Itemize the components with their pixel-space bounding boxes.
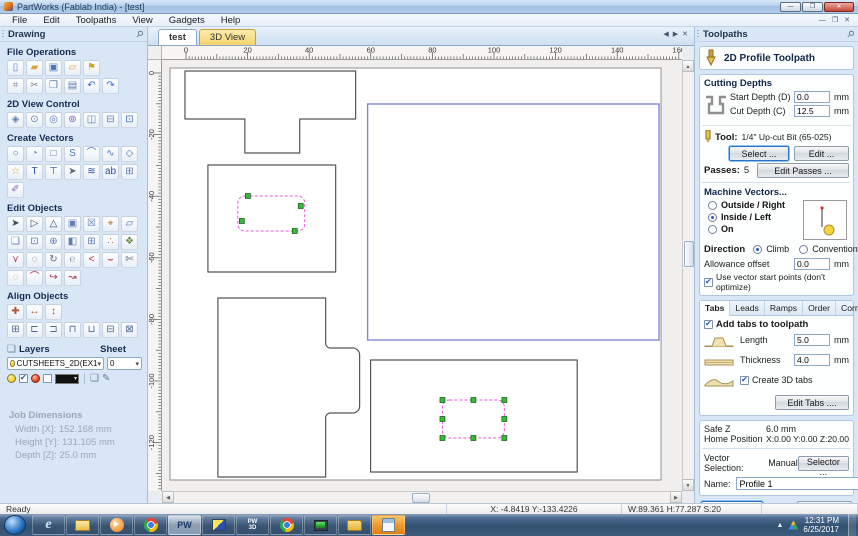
close-vector-icon[interactable]: ◌: [26, 252, 43, 268]
chevron-down-icon: ▾: [97, 360, 101, 368]
tab-thickness-icon: [704, 353, 734, 367]
draw-polyline-icon[interactable]: S: [64, 146, 81, 162]
draw-star-icon[interactable]: ☆: [7, 164, 24, 180]
vertical-scrollbar[interactable]: ▲ ▼: [682, 60, 694, 491]
tab-3d-view[interactable]: 3D View: [199, 29, 256, 45]
taskbar-folder-icon: [347, 520, 362, 531]
layers-label: Layers: [19, 344, 50, 355]
status-ready: Ready: [0, 504, 447, 514]
tab-tabs[interactable]: Tabs: [700, 301, 730, 316]
drive-tray-icon[interactable]: [788, 521, 798, 530]
menu-gadgets[interactable]: Gadgets: [161, 14, 213, 27]
radio-climb[interactable]: Climb: [753, 244, 789, 254]
window-title: PartWorks (Fablab India) - [test]: [17, 2, 144, 12]
job-dimensions-title: Job Dimensions: [9, 410, 147, 421]
new-layer-icon[interactable]: ❏: [90, 373, 99, 384]
nesting-icon[interactable]: ❖: [121, 234, 138, 250]
taskbar-calculator-icon: [382, 518, 395, 532]
mdi-minimize-icon[interactable]: —: [819, 15, 826, 27]
taskbar-partworks-3d-icon: PW3D: [245, 517, 261, 533]
horizontal-ruler: 020406080100120140160: [162, 46, 682, 60]
cutting-depths-group: Cutting Depths Start Depth (D) mm Cut De…: [699, 74, 854, 296]
scroll-left-icon[interactable]: ◀: [162, 491, 174, 503]
selection-handle[interactable]: [245, 194, 250, 199]
sheet-select[interactable]: 0 ▾: [107, 357, 142, 370]
vertical-scroll-thumb[interactable]: [684, 241, 694, 267]
taskbar-partworks-icon: PW: [177, 517, 193, 533]
convert-text-icon[interactable]: ab: [102, 164, 119, 180]
align-left-icon[interactable]: ⊏: [26, 322, 43, 338]
zoom-selected-icon[interactable]: ⊚: [64, 112, 81, 128]
bezier-fit-icon[interactable]: ⌣: [102, 252, 119, 268]
zoom-box-icon[interactable]: ◎: [45, 112, 62, 128]
array-copy-icon[interactable]: ⊞: [83, 234, 100, 250]
section-view-control: 2D View Control: [7, 99, 147, 110]
chevron-down-icon: ▾: [135, 360, 139, 368]
passes-value: 5: [744, 165, 749, 176]
radio-conventional[interactable]: Conventional: [799, 244, 858, 254]
taskbar-calculator[interactable]: [372, 515, 405, 535]
edit-objects-toolbar: ➤▷△▣☒⌖▱: [7, 216, 147, 232]
scroll-up-icon[interactable]: ▲: [682, 60, 694, 72]
selection-size: W:89.361 H:77.287 S:20: [622, 504, 762, 514]
layer-color-select[interactable]: ▾: [55, 374, 79, 384]
draw-arc-icon[interactable]: ⌒: [83, 146, 100, 162]
cursor-position: X: -4.8419 Y:-133.4226: [447, 504, 622, 514]
cutting-depths-icon: [704, 91, 728, 121]
copy-along-vector-icon[interactable]: ∴: [102, 234, 119, 250]
tool-icon: [704, 130, 712, 144]
layer-highlight-bulb-icon[interactable]: [31, 374, 40, 383]
vector-drawing[interactable]: [162, 60, 682, 491]
mdi-restore-icon[interactable]: ❐: [832, 15, 838, 27]
minimize-window-icon[interactable]: —: [780, 2, 801, 12]
vector-selection-value: Manual: [768, 458, 798, 468]
taskbar-media-player-icon: ▶: [110, 518, 124, 532]
tab-ramps[interactable]: Ramps: [765, 301, 803, 315]
horizontal-scroll-thumb[interactable]: [412, 493, 430, 503]
taskbar-ie[interactable]: e: [32, 515, 65, 535]
taskbar-folder[interactable]: [338, 515, 371, 535]
app-icon: [4, 2, 13, 11]
selection-handle[interactable]: [502, 398, 507, 403]
job-height-value: 131.105 mm: [62, 437, 115, 448]
draw-ellipse-icon[interactable]: ◔: [26, 146, 43, 162]
group-objects-icon[interactable]: ▣: [64, 216, 81, 232]
distort-object-icon[interactable]: ▱: [121, 216, 138, 232]
toolpaths-panel: Toolpaths ⚲ 2D Profile Toolpath Cutting …: [695, 27, 858, 503]
layer-visibility-checkbox[interactable]: [19, 374, 28, 383]
horizontal-scrollbar[interactable]: ◀ ▶: [162, 491, 682, 503]
taskbar-system-monitor[interactable]: [304, 515, 337, 535]
arc-fit-icon[interactable]: <: [83, 252, 100, 268]
toolpath-title: 2D Profile Toolpath: [724, 53, 815, 64]
svg-text:120: 120: [549, 46, 562, 55]
file-operations-toolbar: ▯▰▣▱⚑: [7, 60, 147, 76]
select-tool-button[interactable]: Select ...: [729, 146, 789, 161]
toolpaths-panel-title: Toolpaths: [703, 29, 748, 40]
draw-polygon-icon[interactable]: ◇: [121, 146, 138, 162]
svg-text:60: 60: [367, 46, 375, 55]
selection-handle[interactable]: [440, 398, 445, 403]
switch-3d-view-icon[interactable]: ⊡: [121, 112, 138, 128]
vector-shape[interactable]: [170, 68, 661, 480]
edit-tabs-button[interactable]: Edit Tabs ....: [775, 395, 849, 410]
zoom-interactive-icon[interactable]: ⊙: [26, 112, 43, 128]
taskbar-explorer-icon: [75, 520, 90, 531]
job-depth-value: 25.0 mm: [59, 450, 96, 461]
svg-text:40: 40: [305, 46, 313, 55]
view-control-toolbar: ◈⊙◎⊚◫⊟⊡: [7, 112, 147, 128]
ungroup-objects-icon[interactable]: ☒: [83, 216, 100, 232]
add-tabs-checkbox[interactable]: Add tabs to toolpath: [704, 319, 849, 330]
select-tool-icon[interactable]: ➤: [7, 216, 24, 232]
restore-window-icon[interactable]: ❐: [802, 2, 823, 12]
undo-icon[interactable]: ↶: [83, 78, 100, 94]
taskbar-media-player[interactable]: ▶: [100, 515, 133, 535]
svg-text:-20: -20: [148, 129, 156, 140]
align-bottom-icon[interactable]: ⊔: [83, 322, 100, 338]
tab-test[interactable]: test: [158, 29, 197, 45]
svg-text:100: 100: [488, 46, 501, 55]
selection-handle[interactable]: [440, 436, 445, 441]
pin-icon[interactable]: ⚲: [845, 28, 856, 39]
cut-vector-icon[interactable]: ✄: [121, 252, 138, 268]
vertical-ruler: 0-20-40-60-80-100-120: [148, 60, 162, 491]
redo-icon[interactable]: ↷: [102, 78, 119, 94]
edit-tool-button[interactable]: Edit ...: [794, 146, 849, 161]
selection-handle[interactable]: [440, 417, 445, 422]
taskbar-partworks[interactable]: PW: [168, 515, 201, 535]
draw-freehand-icon[interactable]: ✐: [7, 182, 24, 198]
zoom-extents-icon[interactable]: ◫: [83, 112, 100, 128]
taskbar: e▶PWPW3D ▲ 12:31 PM 6/25/2017: [0, 514, 858, 536]
vector-texture-icon[interactable]: ⊞: [121, 164, 138, 180]
menu-edit[interactable]: Edit: [35, 14, 67, 27]
text-box-icon[interactable]: ⊤: [45, 164, 62, 180]
tab-corners[interactable]: Corners: [836, 301, 858, 315]
arc-segment-icon[interactable]: ⌒: [26, 270, 43, 286]
export-vectors-icon[interactable]: ⚑: [83, 60, 100, 76]
move-object-icon[interactable]: ⊕: [45, 234, 62, 250]
start-button[interactable]: [4, 515, 26, 535]
paste-icon[interactable]: ▤: [64, 78, 81, 94]
cut-depth-input[interactable]: [794, 105, 830, 117]
drawing-panel: Drawing ⚲ File Operations ▯▰▣▱⚑ ⌗✂❐▤↶↷ 2…: [0, 27, 148, 503]
job-dimensions: Job Dimensions Width [X]: 152.168 mm Hei…: [0, 410, 147, 461]
title-bar: PartWorks (Fablab India) - [test] — ❐ ✕: [0, 0, 858, 14]
menu-bar: FileEditToolpathsViewGadgetsHelp: [0, 14, 858, 27]
radio-inside-left[interactable]: Inside / Left: [708, 212, 803, 222]
taskbar-items: e▶PWPW3D: [32, 515, 406, 535]
scale-object-icon[interactable]: ⊡: [26, 234, 43, 250]
home-position-value: X:0.00 Y:0.00 Z:20.00: [766, 434, 849, 444]
toolpath-name-input[interactable]: [736, 477, 858, 490]
selection-handle[interactable]: [298, 204, 303, 209]
svg-text:-100: -100: [148, 373, 156, 388]
machine-vectors-options: Outside / RightInside / LeftOn: [704, 198, 803, 240]
start-depth-input[interactable]: [794, 91, 830, 103]
layer-on-bulb-icon[interactable]: [7, 374, 16, 383]
taskbar-chrome-alt[interactable]: [270, 515, 303, 535]
center-y-icon[interactable]: ↕: [45, 304, 62, 320]
taskbar-ie-icon: e: [41, 517, 57, 533]
sheet-label: Sheet: [100, 344, 126, 355]
layer-lock-checkbox[interactable]: [43, 374, 52, 383]
select-text-icon[interactable]: ➤: [64, 164, 81, 180]
tab-thickness-input[interactable]: [794, 354, 830, 366]
scroll-tabs-left-icon[interactable]: ◀: [663, 30, 668, 38]
join-vectors-icon[interactable]: ⋎: [7, 252, 24, 268]
taskbar-chrome-alt-icon: [280, 518, 294, 532]
cut-icon[interactable]: ✂: [26, 78, 43, 94]
selection-handle[interactable]: [502, 417, 507, 422]
scroll-down-icon[interactable]: ▼: [682, 479, 694, 491]
layer-visible-bulb-icon: [10, 360, 15, 367]
draw-curve-icon[interactable]: ∿: [102, 146, 119, 162]
radio-outside-right[interactable]: Outside / Right: [708, 200, 803, 210]
measure-tool-icon[interactable]: ⌖: [102, 216, 119, 232]
selection-handle[interactable]: [471, 436, 476, 441]
safe-z-value: 6.0 mm: [766, 424, 796, 434]
open-file-icon[interactable]: ▰: [26, 60, 43, 76]
view-tabs: test3D View: [148, 27, 694, 46]
ruler-corner: [148, 46, 162, 60]
scroll-right-icon[interactable]: ▶: [670, 491, 682, 503]
section-file-operations: File Operations: [7, 47, 147, 58]
align-right-icon[interactable]: ⊐: [45, 322, 62, 338]
text-on-curve-icon[interactable]: ≋: [83, 164, 100, 180]
svg-text:0: 0: [148, 71, 156, 75]
taskbar-chrome[interactable]: [134, 515, 167, 535]
selection-handle[interactable]: [502, 436, 507, 441]
transform-tool-icon[interactable]: △: [45, 216, 62, 232]
new-file-icon[interactable]: ▯: [7, 60, 24, 76]
tab-leads[interactable]: Leads: [730, 301, 764, 315]
svg-text:-80: -80: [148, 314, 156, 325]
show-desktop-button[interactable]: [848, 514, 856, 536]
section-create-vectors: Create Vectors: [7, 133, 147, 144]
svg-text:-40: -40: [148, 191, 156, 202]
taskbar-partworks-3d[interactable]: PW3D: [236, 515, 269, 535]
space-horizontal-icon[interactable]: ⊟: [102, 322, 119, 338]
edit-passes-button[interactable]: Edit Passes ...: [757, 163, 849, 178]
svg-text:-120: -120: [148, 435, 156, 450]
create-vectors-toolbar: ○◔□S⌒∿◇: [7, 146, 147, 162]
screen: PartWorks (Fablab India) - [test] — ❐ ✕ …: [0, 0, 858, 536]
tabs-group: TabsLeadsRampsOrderCorners Add tabs to t…: [699, 300, 854, 416]
job-width-value: 152.168 mm: [59, 424, 112, 435]
create-3d-tabs-checkbox[interactable]: Create 3D tabs: [740, 375, 813, 385]
menu-help[interactable]: Help: [213, 14, 249, 27]
tool-name: 1/4" Up-cut Bit (65-025): [742, 132, 832, 142]
tab-length-input[interactable]: [794, 334, 830, 346]
svg-text:-60: -60: [148, 252, 156, 263]
profile-toolpath-icon: [704, 49, 718, 67]
node-edit-tool-icon[interactable]: ▷: [26, 216, 43, 232]
save-file-icon[interactable]: ▣: [45, 60, 62, 76]
clock[interactable]: 12:31 PM 6/25/2017: [803, 516, 843, 534]
position-group: Safe Z6.0 mm Home PositionX:0.00 Y:0.00 …: [699, 420, 854, 496]
close-window-icon[interactable]: ✕: [824, 2, 854, 12]
selection-handle[interactable]: [239, 219, 244, 224]
selection-handle[interactable]: [471, 398, 476, 403]
align-center-icon[interactable]: ⊞: [7, 322, 24, 338]
menu-toolpaths[interactable]: Toolpaths: [68, 14, 125, 27]
menu-file[interactable]: File: [4, 14, 35, 27]
copy-icon[interactable]: ❐: [45, 78, 62, 94]
vector-start-points-checkbox[interactable]: Use vector start points (don't optimize): [704, 272, 849, 292]
align-top-icon[interactable]: ⊓: [64, 322, 81, 338]
svg-text:80: 80: [428, 46, 436, 55]
svg-text:20: 20: [243, 46, 251, 55]
zoom-width-icon[interactable]: ⊟: [102, 112, 119, 128]
space-vertical-icon[interactable]: ⊠: [121, 322, 138, 338]
arc-direction-icon[interactable]: ↪: [45, 270, 62, 286]
create-3d-tabs-icon: [704, 373, 734, 387]
section-align-objects: Align Objects: [7, 291, 147, 302]
mdi-close-icon[interactable]: ✕: [844, 15, 850, 27]
import-vectors-icon[interactable]: ▱: [64, 60, 81, 76]
pan-view-icon[interactable]: ◈: [7, 112, 24, 128]
section-edit-objects: Edit Objects: [7, 203, 147, 214]
align-objects-toolbar: ✚↔↕: [7, 304, 147, 320]
draw-circle-icon[interactable]: ○: [7, 146, 24, 162]
edit-selected-blob-icon[interactable]: ◌: [7, 270, 24, 286]
layer-select[interactable]: CUTSHEETS_2D(EX1 ▾: [7, 357, 104, 370]
taskbar-vcarve-app[interactable]: [202, 515, 235, 535]
reverse-direction-icon[interactable]: ↝: [64, 270, 81, 286]
canvas-area: test3D View ◀ ▶ ✕ 020406080100120140160 …: [148, 27, 695, 503]
center-x-icon[interactable]: ↔: [26, 304, 43, 320]
tabs-tab-bar: TabsLeadsRampsOrderCorners: [700, 301, 853, 316]
draw-text-icon[interactable]: T: [26, 164, 43, 180]
edit-layers-icon[interactable]: ✎: [102, 373, 110, 384]
selection-handle[interactable]: [292, 229, 297, 234]
drawing-panel-title: Drawing: [8, 29, 45, 40]
draw-rectangle-icon[interactable]: □: [45, 146, 62, 162]
radio-on[interactable]: On: [708, 224, 803, 234]
tab-order[interactable]: Order: [803, 301, 836, 315]
scroll-tabs-right-icon[interactable]: ▶: [673, 30, 678, 38]
taskbar-system-monitor-icon: [314, 520, 328, 531]
allowance-offset-input[interactable]: [794, 258, 830, 270]
svg-text:0: 0: [184, 46, 188, 55]
machine-vectors-preview: [803, 200, 847, 240]
job-setup-icon[interactable]: ⌗: [7, 78, 24, 94]
smooth-vector-icon[interactable]: ↻: [45, 252, 62, 268]
curve-fit-icon[interactable]: ℮: [64, 252, 81, 268]
taskbar-explorer[interactable]: [66, 515, 99, 535]
status-bar: Ready X: -4.8419 Y:-133.4226 W:89.361 H:…: [0, 503, 858, 514]
pin-icon[interactable]: ⚲: [134, 28, 145, 39]
taskbar-vcarve-app-icon: [212, 519, 226, 531]
layers-icon: ❏: [7, 344, 16, 355]
svg-text:160: 160: [673, 46, 682, 55]
taskbar-chrome-icon: [144, 518, 158, 532]
tab-length-icon: [704, 333, 734, 347]
mirror-object-icon[interactable]: ◧: [64, 234, 81, 250]
tray-expand-icon[interactable]: ▲: [776, 522, 783, 529]
offset-vectors-icon[interactable]: ❏: [7, 234, 24, 250]
menu-view[interactable]: View: [124, 14, 160, 27]
drawing-viewport[interactable]: [162, 60, 682, 491]
center-in-material-icon[interactable]: ✚: [7, 304, 24, 320]
selector-button[interactable]: Selector ...: [798, 456, 849, 471]
svg-text:140: 140: [611, 46, 624, 55]
close-view-icon[interactable]: ✕: [682, 30, 688, 38]
